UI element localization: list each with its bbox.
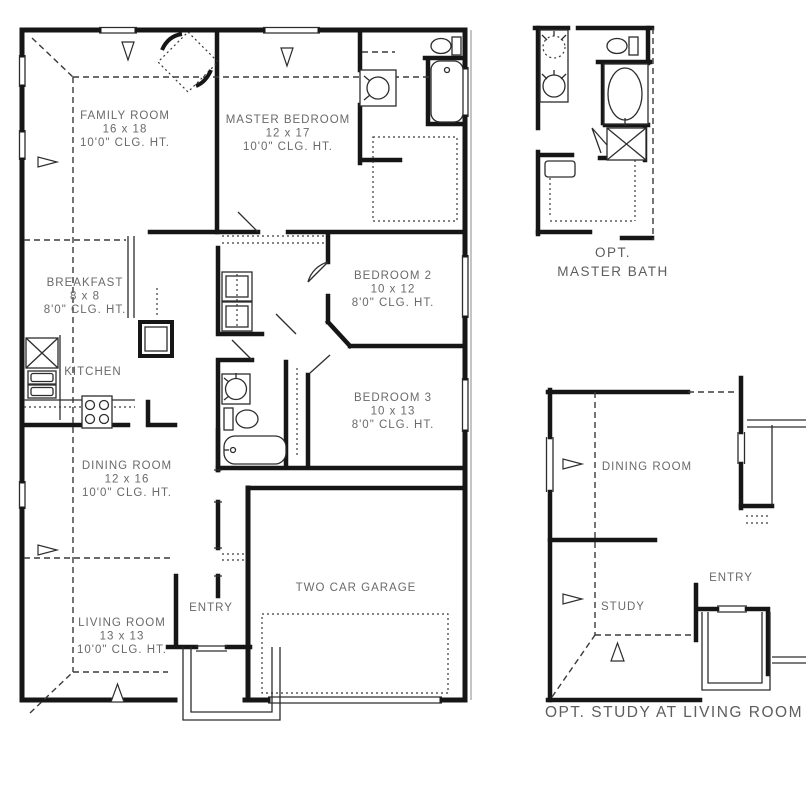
hall-closet	[222, 554, 244, 560]
inset-bath-caption-line2: MASTER BATH	[557, 264, 669, 279]
inset-closet-shelves	[550, 160, 635, 221]
hall-toilet	[236, 410, 258, 428]
master-bedroom-name: MASTER BEDROOM	[226, 114, 351, 126]
inset-toilet-tank	[629, 37, 638, 55]
window-marker-down-icon	[122, 42, 134, 60]
family-room-ceiling: 10'0" CLG. HT.	[80, 137, 170, 149]
inset-entry-label: ENTRY	[709, 572, 753, 584]
master-bedroom-size: 12 x 17	[266, 128, 311, 140]
window-marker-down-icon	[281, 48, 293, 66]
fireplace	[158, 32, 218, 92]
bedroom3-ceiling: 8'0" CLG. HT.	[352, 419, 435, 431]
master-toilet	[431, 39, 451, 54]
inset-study: DINING ROOM STUDY ENTRY OPT. STUDY AT LI…	[545, 378, 806, 721]
inset-toilet	[607, 39, 627, 54]
inset-study-caption: OPT. STUDY AT LIVING ROOM	[545, 704, 803, 721]
master-toilet-tank	[452, 37, 461, 55]
inset-study-labels: DINING ROOM STUDY ENTRY OPT. STUDY AT LI…	[545, 461, 803, 721]
bedroom2-ceiling: 8'0" CLG. HT.	[352, 297, 435, 309]
master-bath-fixtures	[360, 37, 463, 221]
inset-study-label: STUDY	[601, 601, 645, 613]
window-marker-right-icon	[38, 157, 57, 167]
hall-tub	[224, 436, 286, 464]
master-bedroom-ceiling: 10'0" CLG. HT.	[243, 141, 333, 153]
exterior-walls	[22, 30, 465, 700]
breakfast-name: BREAKFAST	[47, 277, 124, 289]
floor-plan-page: FAMILY ROOM 16 x 18 10'0" CLG. HT. MASTE…	[0, 0, 810, 810]
bedroom3-name: BEDROOM 3	[354, 392, 432, 404]
floor-plan-svg: FAMILY ROOM 16 x 18 10'0" CLG. HT. MASTE…	[0, 0, 810, 810]
living-room-name: LIVING ROOM	[78, 617, 166, 629]
living-room-ceiling: 10'0" CLG. HT.	[77, 644, 167, 656]
family-room-size: 16 x 18	[103, 124, 148, 136]
window-marker-right-icon	[38, 545, 57, 555]
garage-door-lines	[268, 697, 442, 703]
inset-study-porch	[702, 606, 806, 690]
family-room-name: FAMILY ROOM	[80, 110, 170, 122]
bedroom3-size: 10 x 13	[371, 406, 416, 418]
garage-door-recess	[262, 614, 448, 693]
dining-room-name: DINING ROOM	[82, 460, 172, 472]
breakfast-size: 8 x 8	[70, 291, 100, 303]
utility-washer-dryer	[222, 236, 326, 331]
main-plan: FAMILY ROOM 16 x 18 10'0" CLG. HT. MASTE…	[20, 28, 472, 721]
master-vanity	[360, 70, 396, 106]
hall-toilet-tank	[224, 408, 233, 430]
master-tub	[431, 61, 463, 122]
dining-room-ceiling: 10'0" CLG. HT.	[82, 487, 172, 499]
inset-study-walls	[547, 378, 807, 700]
bedroom2-name: BEDROOM 2	[354, 270, 432, 282]
inset-study-dashed	[552, 392, 695, 697]
breakfast-ceiling: 8'0" CLG. HT.	[44, 304, 127, 316]
inset-study-arrows	[563, 459, 624, 661]
window-marker-up-icon	[611, 643, 624, 661]
kitchen-label: KITCHEN	[64, 366, 121, 378]
garage-details	[262, 614, 448, 693]
entry-porch	[183, 646, 280, 720]
inset-garden-tub	[608, 68, 642, 120]
inset-bath-caption: OPT. MASTER BATH	[557, 245, 669, 279]
inset-bath-caption-line1: OPT.	[595, 245, 631, 260]
window-marker-right-icon	[563, 459, 582, 469]
stove	[82, 396, 112, 428]
entry-label: ENTRY	[189, 602, 233, 614]
inset-master-bath: OPT. MASTER BATH	[535, 28, 669, 279]
garage-label: TWO CAR GARAGE	[296, 582, 417, 594]
bedroom2-size: 10 x 12	[371, 284, 416, 296]
master-closet-shelves	[373, 137, 457, 221]
dining-room-size: 12 x 16	[105, 474, 150, 486]
kitchen-fixtures	[24, 236, 172, 428]
inset-dining-label: DINING ROOM	[602, 461, 692, 473]
living-room-size: 13 x 13	[100, 631, 145, 643]
window-marker-right-icon	[563, 594, 582, 604]
window-marker-up-icon	[111, 684, 124, 702]
